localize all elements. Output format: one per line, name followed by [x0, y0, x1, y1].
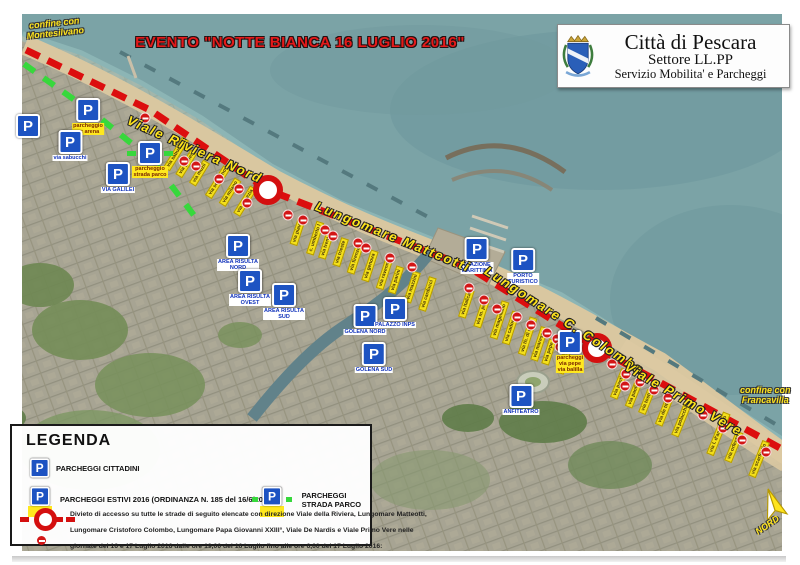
parking-caption: via sabucchi: [52, 155, 87, 161]
parking-sign-icon: P: [226, 234, 250, 258]
no-entry-icon: [512, 312, 523, 323]
no-entry-icon: [526, 320, 537, 331]
parking-sign-row: P: [465, 237, 489, 261]
parking-sign-row: P: [509, 384, 533, 408]
no-entry-icon: [242, 198, 253, 209]
parking-sign-row: P: [383, 297, 407, 321]
pescara-coat-of-arms: [561, 33, 595, 79]
parking-caption: PALAZZO INPS: [374, 322, 416, 328]
legend-summer-label: PARCHEGGI ESTIVI 2016 (ORDINANZA N. 185 …: [60, 495, 274, 504]
no-entry-icon: [179, 156, 190, 167]
parking-sign-icon: P: [383, 297, 407, 321]
no-entry-icon: [298, 215, 309, 226]
no-entry-icon: [479, 295, 490, 306]
parking-marker-city: PANFITEATRO: [502, 384, 539, 415]
no-entry-icon: [492, 304, 503, 315]
legend-parco-label: PARCHEGGI STRADA PARCO: [302, 491, 370, 509]
legend-city-label: PARCHEGGI CITTADINI: [56, 464, 139, 473]
legend-title: LEGENDA: [26, 432, 111, 450]
green-dash-icon: [286, 497, 292, 502]
parking-sign-row: P: [238, 269, 262, 293]
parking-sign-row: P: [272, 283, 296, 307]
parking-sign-icon: P: [138, 141, 162, 165]
parking-marker-city: PVIA GALILEI: [101, 162, 135, 193]
header-service: Servizio Mobilita' e Parcheggi: [595, 68, 786, 81]
parking-marker-city: PAREA RISULTA SUD: [263, 283, 305, 320]
parking-sign-icon: P: [76, 98, 100, 122]
green-dash-icon: [252, 497, 258, 502]
no-entry-icon: [385, 253, 396, 264]
parking-sign-icon: P: [106, 162, 130, 186]
divieto-line-3: giornate del 16 e 17 Luglio 2016 dalle o…: [70, 539, 370, 555]
parking-sign-icon: P: [238, 269, 262, 293]
no-entry-icon: [361, 243, 372, 254]
green-dash-icon: [164, 151, 173, 156]
parking-sign-row: P: [226, 234, 250, 258]
parking-caption: GOLENA NORD: [343, 329, 386, 335]
scanned-map-page: via sabucchivia galileivia muziivia solf…: [0, 0, 800, 565]
parking-marker-city: PAREA RISULTA NORD: [217, 234, 259, 271]
legend-box: LEGENDA P PARCHEGGI CITTADINI P PARCHEGG…: [10, 424, 372, 546]
parking-sign-icon: P: [272, 283, 296, 307]
parking-marker-city: P: [16, 114, 40, 138]
parking-sign-icon: P: [58, 130, 82, 154]
no-entry-icon: [464, 283, 475, 294]
divieto-line-2: Lungomare Cristoforo Colombo, Lungomare …: [70, 523, 370, 539]
parking-caption: VIA GALILEI: [101, 187, 135, 193]
municipality-header: Città di Pescara Settore LL.PP Servizio …: [557, 24, 790, 88]
parking-sign-row: P: [362, 342, 386, 366]
map-canvas: via sabucchivia galileivia muziivia solf…: [0, 0, 800, 565]
no-entry-icon: [191, 161, 202, 172]
parking-caption: AREA RISULTA SUD: [263, 308, 305, 320]
no-entry-icon: [407, 262, 418, 273]
parking-sign-icon: P: [465, 237, 489, 261]
parking-caption: ANFITEATRO: [502, 409, 539, 415]
parking-marker-city: Pvia sabucchi: [52, 130, 87, 161]
road-closed-icon: [20, 506, 70, 546]
parking-caption: parcheggio strada parco: [132, 166, 167, 178]
header-sector: Settore LL.PP: [595, 53, 786, 69]
parking-sign-row: P: [106, 162, 130, 186]
parking-sign-row: P: [511, 248, 535, 272]
parking-sign-icon: P: [509, 384, 533, 408]
divieto-line-1: Divieto di accesso su tutte le strade di…: [70, 507, 370, 523]
boundary-label-francavilla: confine con Francavilla: [740, 385, 791, 405]
header-city: Città di Pescara: [595, 31, 786, 53]
page-shadow: [12, 556, 786, 562]
parking-sign-row: P: [16, 114, 40, 138]
parking-marker-city: PGOLENA SUD: [355, 342, 393, 373]
no-entry-icon: [37, 536, 46, 545]
legend-divieto-text: Divieto di accesso su tutte le strade di…: [70, 507, 370, 555]
parking-sign-row: P: [58, 130, 82, 154]
no-entry-icon: [214, 174, 225, 185]
parking-sign-icon: P: [30, 458, 49, 477]
no-entry-icon: [328, 231, 339, 242]
parking-sign-icon: P: [511, 248, 535, 272]
legend-item-city: P PARCHEGGI CITTADINI: [30, 456, 139, 480]
parking-marker-city: PPALAZZO INPS: [374, 297, 416, 328]
parking-sign-icon: P: [362, 342, 386, 366]
parking-caption: parcheggi via pepe via balilla: [556, 355, 584, 373]
parking-sign-icon: P: [16, 114, 40, 138]
no-entry-icon: [234, 184, 245, 195]
north-arrow: NORD: [758, 488, 794, 540]
parking-sign-row: P: [76, 98, 100, 122]
event-title: EVENTO "NOTTE BIANCA 16 LUGLIO 2016": [110, 34, 490, 51]
no-entry-icon: [761, 447, 772, 458]
parking-caption: GOLENA SUD: [355, 367, 393, 373]
green-dash-icon: [127, 151, 136, 156]
no-entry-icon: [283, 210, 294, 221]
no-entry-icon: [620, 381, 631, 392]
